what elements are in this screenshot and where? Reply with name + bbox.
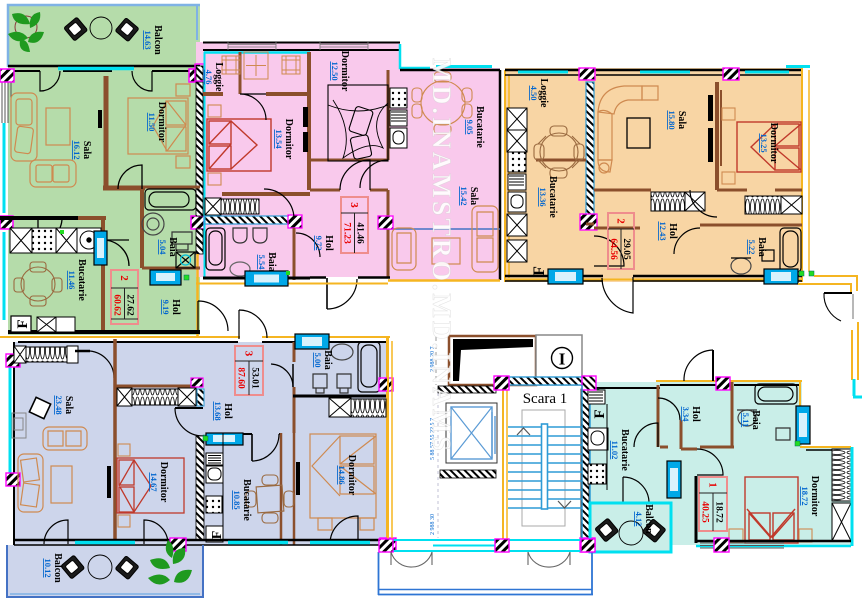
svg-text:13.36: 13.36	[538, 187, 548, 206]
svg-text:15.80: 15.80	[667, 110, 677, 129]
svg-text:14.86: 14.86	[337, 465, 347, 484]
svg-text:3.34: 3.34	[681, 407, 691, 423]
svg-text:9.05: 9.05	[465, 120, 475, 135]
svg-text:53.01: 53.01	[250, 367, 260, 389]
svg-text:4.12: 4.12	[634, 512, 644, 527]
svg-text:29.05: 29.05	[621, 238, 631, 260]
svg-text:5.00: 5.00	[313, 353, 323, 368]
svg-text:14.63: 14.63	[143, 30, 153, 49]
svg-text:5.22: 5.22	[747, 240, 757, 255]
svg-text:87.60: 87.60	[236, 367, 246, 389]
svg-text:11.02: 11.02	[610, 441, 620, 460]
svg-text:5.11: 5.11	[741, 413, 751, 427]
svg-text:12.50: 12.50	[330, 61, 340, 80]
svg-text:Scara 1: Scara 1	[523, 391, 568, 407]
svg-text:18.72: 18.72	[714, 501, 724, 523]
svg-text:11.50: 11.50	[147, 113, 157, 132]
svg-text:15.42: 15.42	[459, 186, 469, 205]
svg-text:18.72: 18.72	[800, 486, 810, 505]
svg-text:9.19: 9.19	[161, 300, 171, 315]
svg-text:11.46: 11.46	[67, 271, 77, 290]
svg-text:F: F	[592, 409, 608, 418]
svg-text:4.76: 4.76	[204, 70, 214, 85]
svg-text:4.50: 4.50	[529, 86, 539, 101]
svg-text:F: F	[531, 266, 548, 276]
svg-text:13.25: 13.25	[759, 133, 769, 152]
svg-text:F: F	[210, 531, 225, 540]
svg-text:16.12: 16.12	[72, 140, 82, 159]
svg-text:F: F	[15, 319, 31, 328]
svg-text:12.43: 12.43	[658, 221, 668, 240]
svg-text:13.68: 13.68	[213, 401, 223, 420]
svg-text:14.67: 14.67	[149, 472, 159, 492]
svg-text:3: 3	[243, 351, 255, 357]
svg-text:10.85: 10.85	[232, 490, 242, 509]
svg-text:13.54: 13.54	[274, 129, 284, 149]
svg-text:10.12: 10.12	[43, 558, 53, 577]
svg-text:71.23: 71.23	[342, 222, 352, 244]
svg-text:5.54: 5.54	[257, 255, 267, 271]
svg-text:3: 3	[348, 202, 360, 208]
svg-text:23.48: 23.48	[54, 395, 64, 414]
svg-text:27.62: 27.62	[125, 294, 135, 316]
svg-text:9.72: 9.72	[314, 236, 324, 251]
svg-text:41.46: 41.46	[355, 222, 365, 244]
svg-text:40.25: 40.25	[700, 501, 710, 523]
svg-text:MD.INAMSTRO.MD.INAMS: MD.INAMSTRO.MD.INAMS	[427, 58, 456, 454]
svg-text:5.04: 5.04	[158, 240, 168, 256]
svg-text:60.62: 60.62	[112, 294, 122, 316]
svg-text:1: 1	[707, 482, 719, 488]
svg-text:2 988 30: 2 988 30	[430, 514, 436, 535]
svg-text:I: I	[559, 350, 566, 369]
svg-text:64.56: 64.56	[608, 238, 618, 260]
svg-text:2: 2	[118, 275, 130, 281]
svg-text:2: 2	[615, 218, 627, 224]
